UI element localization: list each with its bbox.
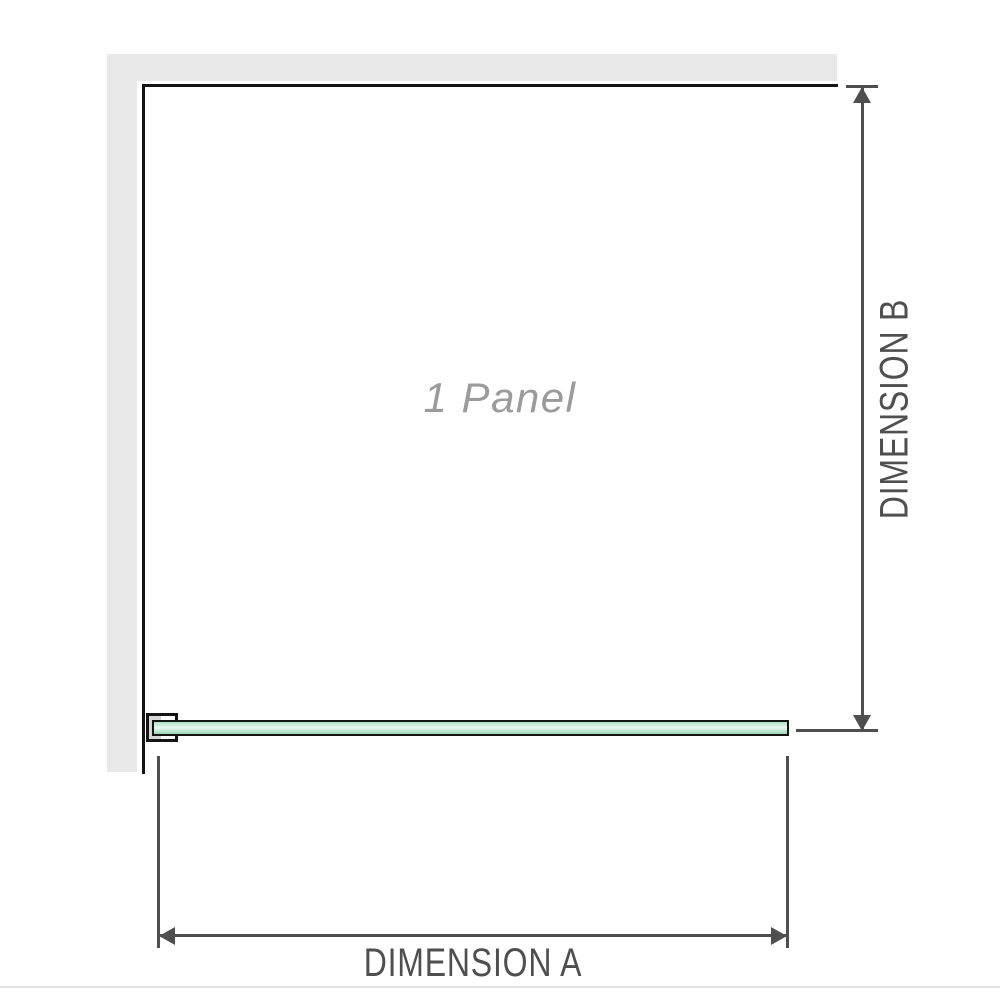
panel-left-edge	[142, 84, 145, 774]
panel-top-edge	[142, 84, 838, 87]
dimension-a-label: DIMENSION A	[364, 941, 583, 986]
wall-left-strip	[107, 54, 137, 772]
dimension-a-extension-right	[786, 756, 789, 948]
shower-screen-diagram: 1 Panel DIMENSION B DIMENSION A	[0, 0, 1000, 1000]
dimension-b-label: DIMENSION B	[873, 299, 918, 519]
dimension-b-line	[861, 88, 864, 731]
dimension-a-arrow-right-icon	[771, 927, 787, 945]
dimension-a-extension-left	[157, 756, 160, 948]
image-bottom-border	[0, 986, 1000, 988]
dimension-b-arrow-down-icon	[853, 715, 871, 731]
dimension-a-line	[159, 934, 787, 937]
dimension-a-arrow-left-icon	[159, 927, 175, 945]
wall-top-strip	[107, 54, 837, 81]
panel-count-label: 1 Panel	[424, 374, 577, 422]
glass-panel	[152, 720, 789, 736]
dimension-b-arrow-up-icon	[853, 87, 871, 103]
